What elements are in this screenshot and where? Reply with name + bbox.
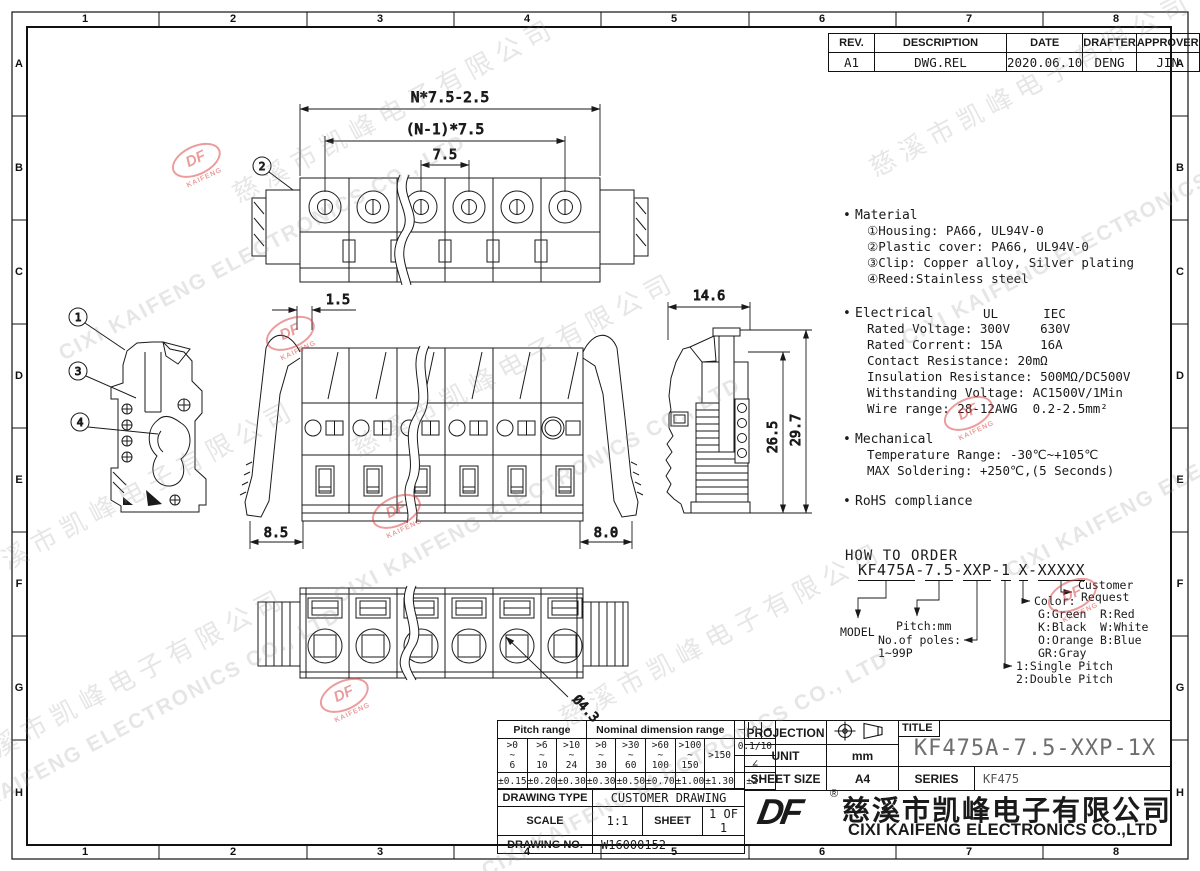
nominal-range-header: Nominal dimension range (586, 721, 734, 739)
front-lever-right (583, 335, 638, 517)
rohs-note: •RoHS compliance (843, 494, 972, 509)
drafter-value: DENG (1083, 53, 1137, 72)
first-angle-projection-icon (831, 721, 895, 741)
order-label-poles: No.of poles: (878, 633, 961, 647)
col-label: 7 (966, 846, 972, 858)
material-notes: •Material ①Housing: PA66, UL94V-0 ②Plast… (843, 208, 1134, 287)
order-seg-model: KF475A (858, 561, 915, 581)
row-label: F (1177, 578, 1184, 590)
range-cell-last: >150 (705, 739, 735, 773)
electrical-line: Insulation Resistance: 500MΩ/DC500V (867, 369, 1130, 385)
order-seg-pitch: 7.5 (925, 561, 954, 581)
col-label: 2 (230, 846, 236, 858)
view-front: 1.5 8.5 8.0 (240, 292, 643, 549)
material-line: ③Clip: Copper alloy, Silver plating (867, 255, 1134, 271)
sheet-size-label: SHEET SIZE (745, 767, 827, 791)
title-block: PROJECTION TITLE KF475A-7.5-XXP-1X UNIT … (744, 720, 1172, 791)
projection-label: PROJECTION (745, 721, 827, 745)
svg-text:3: 3 (75, 365, 82, 378)
col-label: 6 (819, 846, 825, 858)
col-label: 5 (671, 13, 677, 25)
tol-value: ±0.15 (498, 773, 528, 790)
title-label: TITLE (899, 721, 940, 737)
col-label: 1 (82, 846, 88, 858)
description-value: DWG.REL (875, 53, 1007, 72)
col-label: 1 (82, 13, 88, 25)
drawing-type-value: CUSTOMER DRAWING (593, 789, 745, 807)
approver-value: JIN (1136, 53, 1199, 72)
col-label: 8 (1113, 13, 1119, 25)
front-lever-left (245, 335, 300, 517)
title-cell: TITLE KF475A-7.5-XXP-1X (899, 721, 1172, 767)
col-label: 8 (1113, 846, 1119, 858)
section-screws (122, 399, 190, 505)
date-header: DATE (1007, 34, 1083, 53)
range-cell: >0~30 (586, 739, 616, 773)
row-label: H (15, 787, 23, 799)
row-label: G (15, 682, 24, 694)
mechanical-line: Temperature Range: -30℃~+105℃ (867, 447, 1114, 463)
color-option: O:Orange (1038, 633, 1093, 647)
order-label-color: Color: (1034, 594, 1076, 608)
col-label: 7 (966, 13, 972, 25)
range-cell: >0~6 (498, 739, 528, 773)
drawing-no-label: DRAWING NO. (498, 836, 593, 854)
scale-value: 1:1 (593, 807, 643, 836)
dim-pitch-n: (N-1)*7.5 (406, 122, 485, 138)
order-label-model: MODEL (840, 625, 875, 639)
company-name-en: CIXI KAIFENG ELECTRONICS CO.,LTD (848, 821, 1158, 840)
row-label: E (1176, 474, 1183, 486)
color-option: GR:Gray (1038, 646, 1086, 660)
dim-left-width: 8.5 (264, 525, 288, 541)
view-top: 7.5 (N-1)*7.5 N*7.5-2.5 2 (252, 90, 648, 285)
dim-side-depth: 14.6 (693, 288, 726, 304)
tol-value: ±0.30 (586, 773, 616, 790)
svg-text:1: 1 (75, 311, 82, 324)
order-label-poles-range: 1~99P (878, 646, 913, 660)
drafter-header: DRAFTER (1083, 34, 1137, 53)
mechanical-notes: •Mechanical Temperature Range: -30℃~+105… (843, 432, 1114, 479)
electrical-line: Rated Corrent: 15A 16A (867, 337, 1130, 353)
order-label-customer2: Request (1081, 590, 1129, 604)
col-label: 6 (819, 13, 825, 25)
col-label: 3 (377, 846, 383, 858)
color-option: K:Black (1038, 620, 1086, 634)
rev-header: REV. (829, 34, 875, 53)
order-seg-type: 1 (1001, 561, 1011, 581)
balloon-1: 1 (69, 308, 125, 350)
material-line: ①Housing: PA66, UL94V-0 (867, 223, 1134, 239)
electrical-line: Withstanding Voltage: AC1500V/1Min (867, 385, 1130, 401)
svg-text:2: 2 (259, 160, 266, 173)
row-label: G (1176, 682, 1185, 694)
balloon-3: 3 (69, 362, 136, 398)
series-value: KF475 (975, 767, 1172, 791)
row-label: D (15, 370, 23, 382)
unit-value: mm (827, 745, 899, 767)
unit-label: UNIT (745, 745, 827, 767)
electrical-title: Electrical (855, 306, 933, 321)
color-option: W:White (1100, 620, 1148, 634)
dim-right-width: 8.0 (594, 525, 618, 541)
sheet-label: SHEET (643, 807, 703, 836)
rohs-title: RoHS compliance (855, 494, 972, 509)
drawing-type-label: DRAWING TYPE (498, 789, 593, 807)
dim-overall: N*7.5-2.5 (411, 90, 490, 106)
row-label: D (1176, 370, 1184, 382)
svg-text:4: 4 (77, 416, 84, 429)
order-label-type2: 2:Double Pitch (1016, 672, 1113, 686)
sheet-value: 1 OF 1 (703, 807, 745, 836)
row-label: H (1176, 787, 1184, 799)
mechanical-title: Mechanical (855, 432, 933, 447)
row-label: B (15, 162, 23, 174)
drawing-no-value: W16000152 (593, 836, 745, 854)
tolerance-table: Pitch range Nominal dimension range — ∩ … (497, 720, 776, 790)
tol-value: ±0.70 (646, 773, 676, 790)
tol-value: ±1.30 (705, 773, 735, 790)
front-contacts (305, 417, 580, 439)
material-line: ④Reed:Stainless steel (867, 271, 1134, 287)
drawing-sheet: 慈溪市凯峰电子有限公司 CIXI KAIFENG ELECTRONICS CO.… (0, 0, 1200, 871)
scale-label: SCALE (498, 807, 593, 836)
order-seg-poles: XXP (963, 561, 992, 581)
dim-height-inner: 26.5 (765, 421, 781, 454)
series-label: SERIES (899, 767, 975, 791)
material-line: ②Plastic cover: PA66, UL94V-0 (867, 239, 1134, 255)
row-label: F (16, 578, 23, 590)
range-cell: >100~150 (675, 739, 705, 773)
electrical-line: Rated Voltage: 300V 630V (867, 321, 1130, 337)
tol-value: ±1.00 (675, 773, 705, 790)
order-label-pitch: Pitch:mm (896, 619, 951, 633)
col-label: 4 (524, 13, 530, 25)
material-title: Material (855, 208, 918, 223)
mechanical-line: MAX Soldering: +250℃,(5 Seconds) (867, 463, 1114, 479)
rev-value: A1 (829, 53, 875, 72)
pitch-range-header: Pitch range (498, 721, 587, 739)
sheet-size-value: A4 (827, 767, 899, 791)
registered-mark: ® (830, 788, 838, 800)
revision-table: REV. DESCRIPTION DATE DRAFTER APPROVER A… (828, 33, 1200, 72)
drawing-title: KF475A-7.5-XXP-1X (899, 726, 1171, 761)
row-label: B (1176, 162, 1184, 174)
row-label: C (1176, 266, 1184, 278)
view-side: 14.6 26.5 29.7 (666, 288, 812, 513)
order-seg-color: X (1019, 561, 1029, 581)
view-bottom: Ø4.3 (258, 586, 628, 726)
order-part-number: KF475A - 7.5 - XXP - 1 X - XXXXX (858, 561, 1085, 581)
electrical-notes: •Electrical Rated Voltage: 300V 630V Rat… (843, 306, 1130, 417)
col-label: 3 (377, 13, 383, 25)
row-label: A (15, 58, 23, 70)
tol-value: ±0.50 (616, 773, 646, 790)
view-section: 1 3 4 (69, 308, 206, 512)
projection-symbol (827, 721, 899, 745)
dim-offset: 1.5 (326, 292, 350, 308)
order-label-type1: 1:Single Pitch (1016, 659, 1113, 673)
color-option: B:Blue (1100, 633, 1142, 647)
spring-clip (149, 416, 190, 486)
row-label: E (15, 474, 22, 486)
company-block: DF ® 慈溪市凯峰电子有限公司 CIXI KAIFENG ELECTRONIC… (744, 788, 1171, 845)
description-header: DESCRIPTION (875, 34, 1007, 53)
dim-pitch: 7.5 (433, 147, 457, 163)
approver-header: APPROVER (1136, 34, 1199, 53)
range-cell: >10~24 (557, 739, 587, 773)
electrical-line: Contact Resistance: 20mΩ (867, 353, 1130, 369)
color-option: R:Red (1100, 607, 1135, 621)
range-cell: >60~100 (646, 739, 676, 773)
revision-row: A1 DWG.REL 2020.06.10 DENG JIN (829, 53, 1200, 72)
drawing-info-table: DRAWING TYPE CUSTOMER DRAWING SCALE 1:1 … (497, 788, 745, 854)
company-logo: DF (755, 794, 803, 830)
col-label: 2 (230, 13, 236, 25)
row-label: C (15, 266, 23, 278)
tol-value: ±0.20 (527, 773, 557, 790)
color-option: G:Green (1038, 607, 1086, 621)
date-value: 2020.06.10 (1007, 53, 1083, 72)
range-cell: >6~10 (527, 739, 557, 773)
balloon-2: 2 (253, 157, 293, 190)
dim-height-total: 29.7 (788, 414, 804, 447)
range-cell: >30~60 (616, 739, 646, 773)
balloon-4: 4 (71, 413, 158, 434)
electrical-line: Wire range: 28-12AWG 0.2-2.5mm² (867, 401, 1130, 417)
tol-value: ±0.30 (557, 773, 587, 790)
